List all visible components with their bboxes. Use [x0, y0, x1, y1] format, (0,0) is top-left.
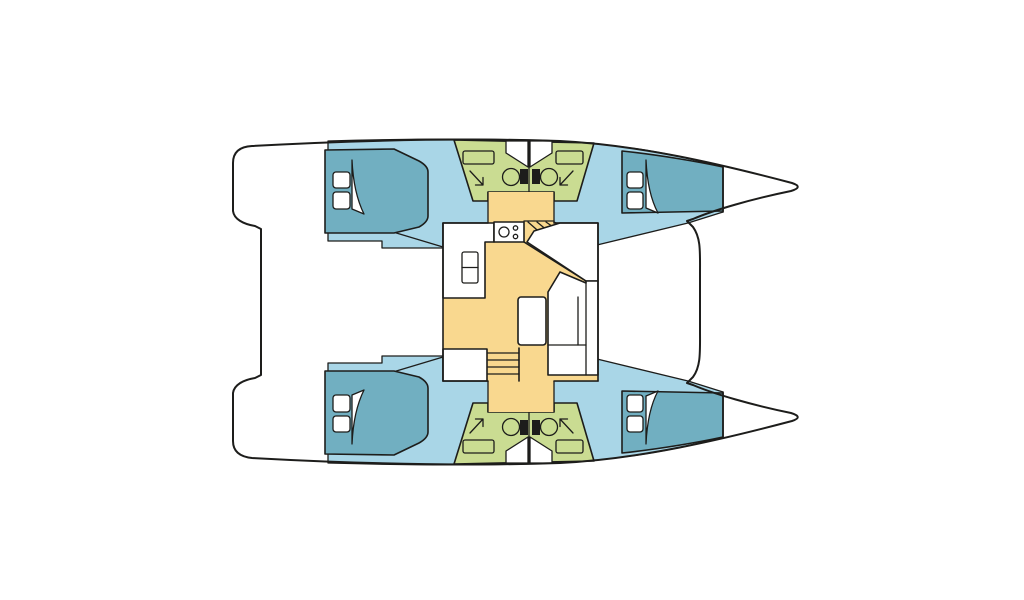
- sink-icon: [463, 151, 494, 164]
- nav-seat: [443, 349, 487, 381]
- forward-bed-pillow: [627, 192, 643, 209]
- toilet-cistern: [520, 169, 528, 184]
- dinette-table: [518, 297, 546, 345]
- toilet-icon: [541, 169, 558, 186]
- dinette-bench: [548, 272, 598, 375]
- toilet-cistern: [532, 169, 540, 184]
- catamaran-floorplan-canvas: [0, 0, 1024, 600]
- forward-bed-pillow: [627, 172, 643, 188]
- sink-icon: [556, 151, 583, 164]
- aft-cabin-bed: [325, 149, 428, 233]
- salon: [443, 221, 598, 381]
- aft-bed-pillow: [333, 192, 350, 209]
- toilet-icon: [503, 169, 520, 186]
- aft-bed-pillow: [333, 172, 350, 188]
- floorplan-svg: [0, 0, 1024, 600]
